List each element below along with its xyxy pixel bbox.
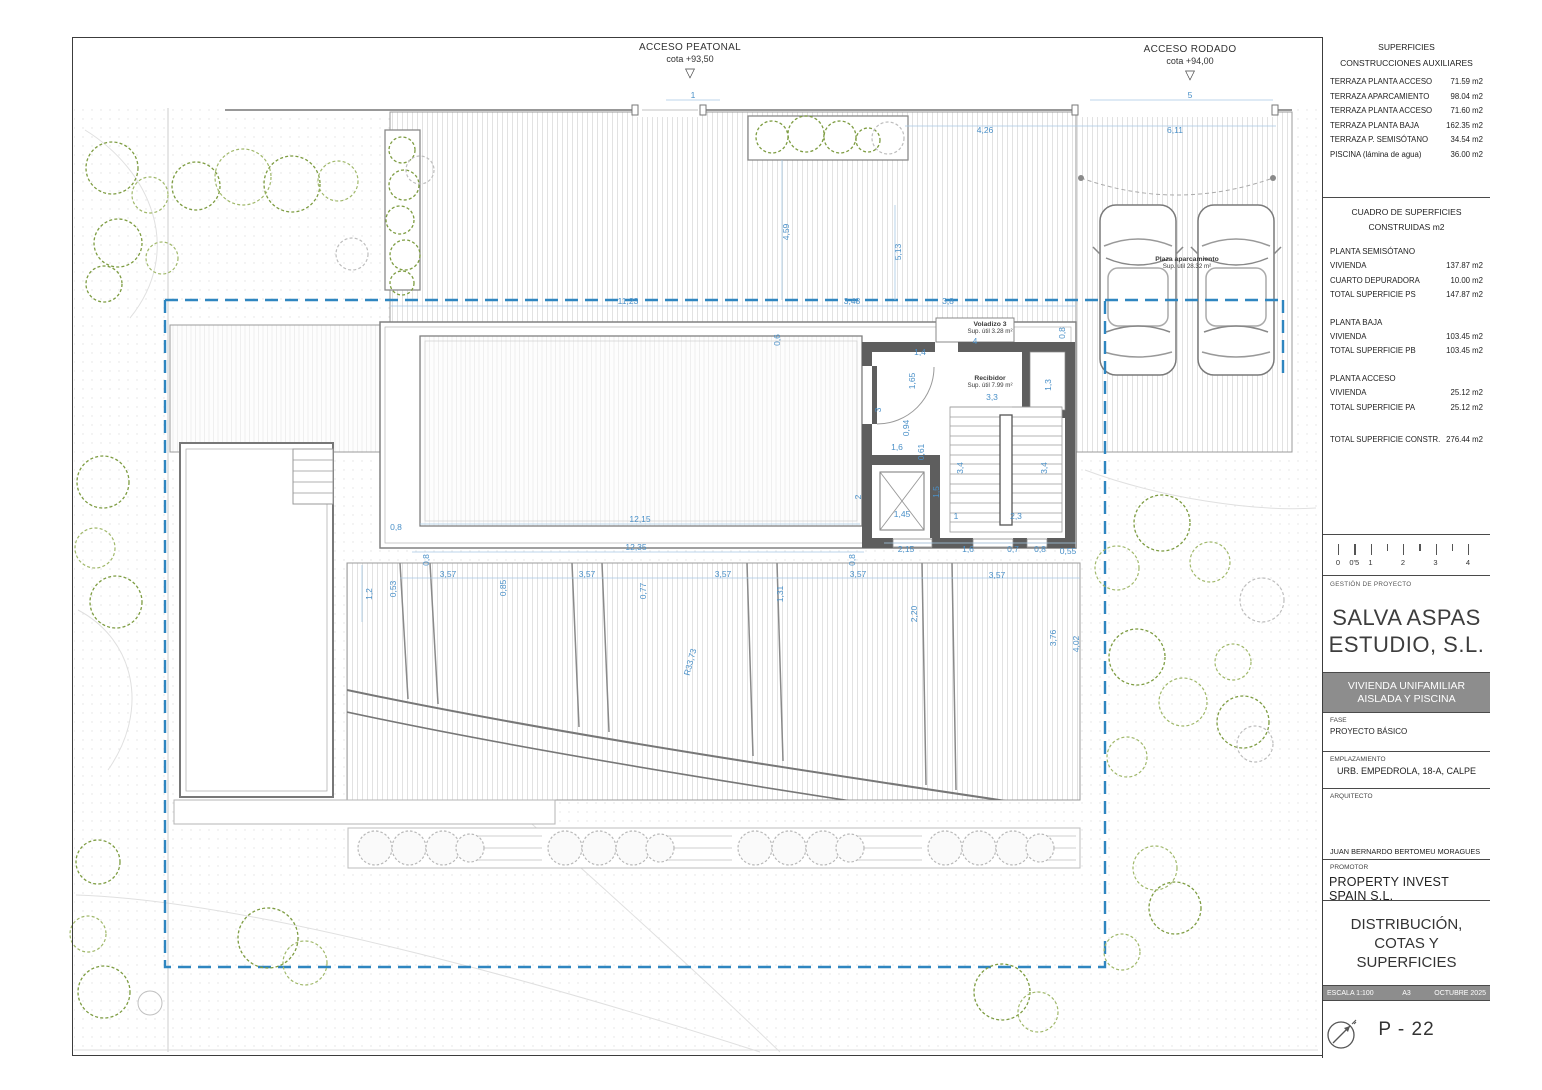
studio-name-line1: SALVA ASPAS	[1323, 604, 1490, 631]
superficies-row: TERRAZA PLANTA ACCESO71.60 m2	[1323, 104, 1490, 119]
cuadro-row: TOTAL SUPERFICIE PA25.12 m2	[1323, 401, 1490, 416]
superficies-title: SUPERFICIES	[1323, 42, 1490, 52]
superficies-row: TERRAZA APARCAMIENTO98.04 m2	[1323, 90, 1490, 105]
arquitecto-label: ARQUITECTO	[1323, 789, 1490, 800]
drawing-title-section: DISTRIBUCIÓN, COTAS Y SUPERFICIES PLANTA…	[1323, 901, 1490, 986]
drawing-frame	[72, 37, 1488, 1056]
cuadro-row: VIVIENDA103.45 m2	[1323, 330, 1490, 345]
scale-tick-label: 0'5	[1349, 558, 1359, 567]
cuadro-row: TOTAL SUPERFICIE PB103.45 m2	[1323, 344, 1490, 359]
studio-name-line2: ESTUDIO, S.L.	[1323, 631, 1490, 658]
scale-tick	[1354, 544, 1355, 555]
scale-tick	[1468, 544, 1469, 555]
drawing-title: DISTRIBUCIÓN, COTAS Y SUPERFICIES	[1323, 915, 1490, 972]
cuadro-heading: PLANTA SEMISÓTANO	[1330, 247, 1483, 256]
cuadro-superficies-section: CUADRO DE SUPERFICIES CONSTRUIDAS m2 PLA…	[1323, 198, 1490, 535]
plan-sheet: ACCESO PEATONAL cota +93,50 ▽ ACCESO ROD…	[0, 0, 1542, 1090]
scale-tick	[1338, 544, 1339, 555]
scale-tick-label: 0	[1336, 558, 1340, 567]
total-constr-row: TOTAL SUPERFICIE CONSTR. 276.44 m2	[1323, 433, 1490, 448]
banner-line1: VIVIENDA UNIFAMILIAR	[1348, 680, 1465, 693]
superficies-row: TERRAZA PLANTA ACCESO71.59 m2	[1323, 75, 1490, 90]
superficies-section: SUPERFICIES CONSTRUCCIONES AUXILIARES TE…	[1323, 37, 1490, 198]
arquitecto-section: ARQUITECTO JUAN BERNARDO BERTOMEU MORAGU…	[1323, 789, 1490, 860]
cuadro-heading: PLANTA BAJA	[1330, 318, 1483, 327]
scale-value: ESCALA 1:100	[1323, 990, 1380, 997]
meta-bar: ESCALA 1:100 A3 OCTUBRE 2025	[1323, 986, 1490, 1001]
drawing-title-line1: DISTRIBUCIÓN,	[1323, 915, 1490, 934]
fase-value: PROYECTO BÁSICO	[1323, 724, 1490, 736]
fase-section: FASE PROYECTO BÁSICO	[1323, 713, 1490, 752]
scale-tick	[1436, 544, 1437, 555]
cuadro-subtitle: CONSTRUIDAS m2	[1323, 222, 1490, 232]
banner-line2: AISLADA Y PISCINA	[1348, 693, 1465, 706]
project-banner: VIVIENDA UNIFAMILIAR AISLADA Y PISCINA	[1323, 673, 1490, 713]
emplazamiento-label: EMPLAZAMIENTO	[1323, 752, 1490, 763]
promotor-value: PROPERTY INVEST SPAIN S.L.	[1323, 871, 1490, 901]
scale-tick	[1403, 544, 1404, 555]
gestion-label: GESTIÓN DE PROYECTO	[1323, 576, 1490, 588]
scale-tick-label: 3	[1433, 558, 1437, 567]
gestion-section: GESTIÓN DE PROYECTO SALVA ASPAS ESTUDIO,…	[1323, 576, 1490, 673]
cuadro-row: VIVIENDA25.12 m2	[1323, 386, 1490, 401]
scale-bar: 00'51234	[1323, 535, 1490, 575]
emplazamiento-value: URB. EMPEDROLA, 18-A, CALPE	[1323, 763, 1490, 776]
scale-tick	[1371, 544, 1372, 555]
paper-size: A3	[1380, 990, 1433, 997]
superficies-row: TERRAZA PLANTA BAJA162.35 m2	[1323, 119, 1490, 134]
superficies-row: PISCINA (lámina de agua)36.00 m2	[1323, 148, 1490, 163]
sheet-number-section: P - 22	[1323, 1001, 1490, 1058]
scale-tick	[1387, 544, 1388, 551]
cuadro-row: CUARTO DEPURADORA10.00 m2	[1323, 274, 1490, 289]
scale-tick-label: 4	[1466, 558, 1470, 567]
scalebar-section: 00'51234	[1323, 535, 1490, 576]
drawing-title-line2: COTAS Y SUPERFICIES	[1323, 934, 1490, 972]
promotor-label: PROMOTOR	[1323, 860, 1490, 871]
scale-tick-label: 1	[1368, 558, 1372, 567]
cuadro-row: TOTAL SUPERFICIE PS147.87 m2	[1323, 288, 1490, 303]
promotor-section: PROMOTOR PROPERTY INVEST SPAIN S.L.	[1323, 860, 1490, 901]
fase-label: FASE	[1323, 713, 1490, 724]
superficies-subtitle: CONSTRUCCIONES AUXILIARES	[1323, 58, 1490, 68]
scale-tick	[1419, 544, 1420, 551]
arquitecto-value: JUAN BERNARDO BERTOMEU MORAGUES	[1330, 847, 1480, 856]
emplazamiento-section: EMPLAZAMIENTO URB. EMPEDROLA, 18-A, CALP…	[1323, 752, 1490, 789]
studio-name: SALVA ASPAS ESTUDIO, S.L.	[1323, 604, 1490, 658]
cuadro-title: CUADRO DE SUPERFICIES	[1323, 207, 1490, 217]
scale-tick-label: 2	[1401, 558, 1405, 567]
superficies-row: TERRAZA P. SEMISÓTANO34.54 m2	[1323, 133, 1490, 148]
cuadro-heading: PLANTA ACCESO	[1330, 374, 1483, 383]
north-arrow-icon	[1323, 1015, 1361, 1053]
cuadro-row: VIVIENDA137.87 m2	[1323, 259, 1490, 274]
scale-tick	[1452, 544, 1453, 551]
total-constr-label: TOTAL SUPERFICIE CONSTR.	[1330, 433, 1440, 448]
date-value: OCTUBRE 2025	[1433, 990, 1490, 997]
total-constr-value: 276.44 m2	[1446, 433, 1483, 448]
title-block: SUPERFICIES CONSTRUCCIONES AUXILIARES TE…	[1322, 37, 1490, 1058]
